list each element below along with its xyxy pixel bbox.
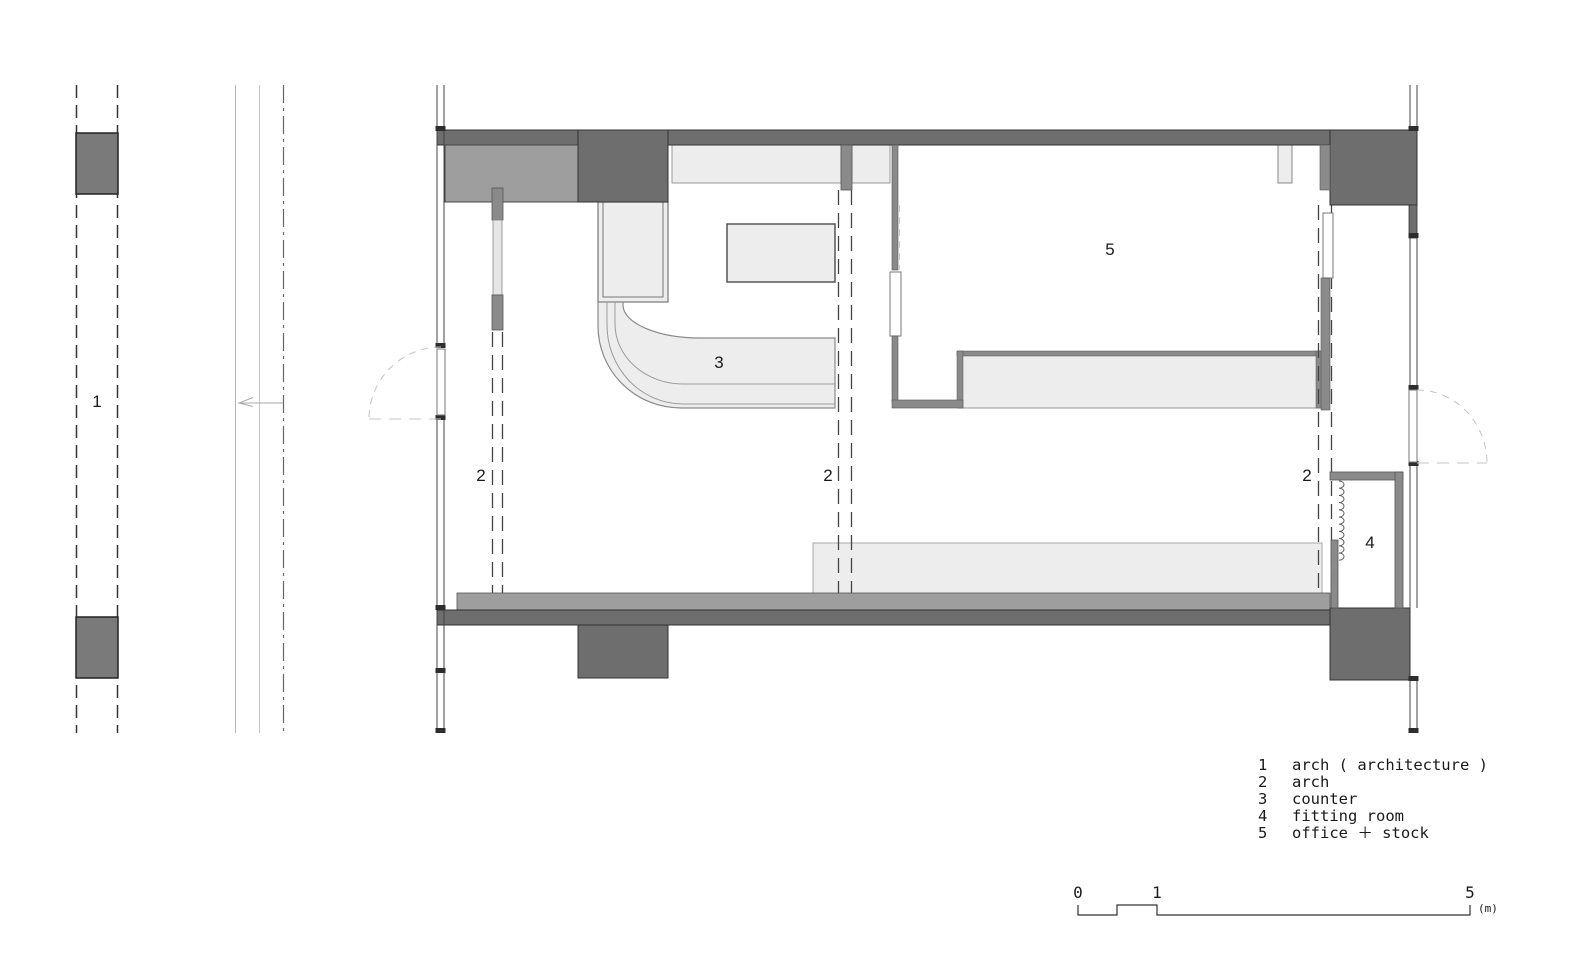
room-label-counter: 3 xyxy=(714,353,723,373)
entrance-door-right xyxy=(1409,390,1487,463)
curtain-coil xyxy=(1339,481,1344,560)
scale-tick-0: 0 xyxy=(1073,883,1083,902)
entrance-door-left xyxy=(369,347,445,419)
legend-number: 4 xyxy=(1258,808,1292,825)
room-label-arch-middle: 2 xyxy=(823,466,832,486)
legend-label: office ＋ stock xyxy=(1292,825,1429,842)
reference-lines xyxy=(236,85,284,733)
room-label-arch-corridor: 1 xyxy=(92,392,101,412)
light-fixtures xyxy=(598,145,1324,597)
legend: 1 arch ( architecture ) 2 arch 3 counter… xyxy=(1258,757,1488,842)
legend-number: 3 xyxy=(1258,791,1292,808)
legend-label: arch ( architecture ) xyxy=(1292,757,1488,774)
room-label-arch-left: 2 xyxy=(476,466,485,486)
legend-row: 2 arch xyxy=(1258,774,1488,791)
office-shelf xyxy=(957,351,1324,408)
office-partition xyxy=(890,145,963,408)
legend-number: 5 xyxy=(1258,825,1292,842)
room-label-office-stock: 5 xyxy=(1105,240,1114,260)
legend-row: 5 office ＋ stock xyxy=(1258,825,1488,842)
left-pier xyxy=(492,188,503,330)
scale-tick-5: 5 xyxy=(1465,883,1475,902)
legend-label: arch xyxy=(1292,774,1329,791)
room-label-arch-right: 2 xyxy=(1302,466,1311,486)
legend-number: 2 xyxy=(1258,774,1292,791)
direction-arrow xyxy=(239,398,283,407)
scale-tick-1: 1 xyxy=(1152,883,1162,902)
scale-unit: (m) xyxy=(1478,902,1498,915)
room-label-fitting-room: 4 xyxy=(1365,533,1374,553)
legend-row: 3 counter xyxy=(1258,791,1488,808)
table xyxy=(727,224,835,282)
floor-plan-canvas: 1 2 2 2 3 4 5 1 arch ( architecture ) 2 … xyxy=(0,0,1582,973)
scale-bar xyxy=(1078,905,1470,915)
display-case xyxy=(598,202,668,302)
bench xyxy=(813,543,1322,597)
legend-label: fitting room xyxy=(1292,808,1404,825)
legend-label: counter xyxy=(1292,791,1357,808)
legend-number: 1 xyxy=(1258,757,1292,774)
legend-row: 4 fitting room xyxy=(1258,808,1488,825)
legend-row: 1 arch ( architecture ) xyxy=(1258,757,1488,774)
